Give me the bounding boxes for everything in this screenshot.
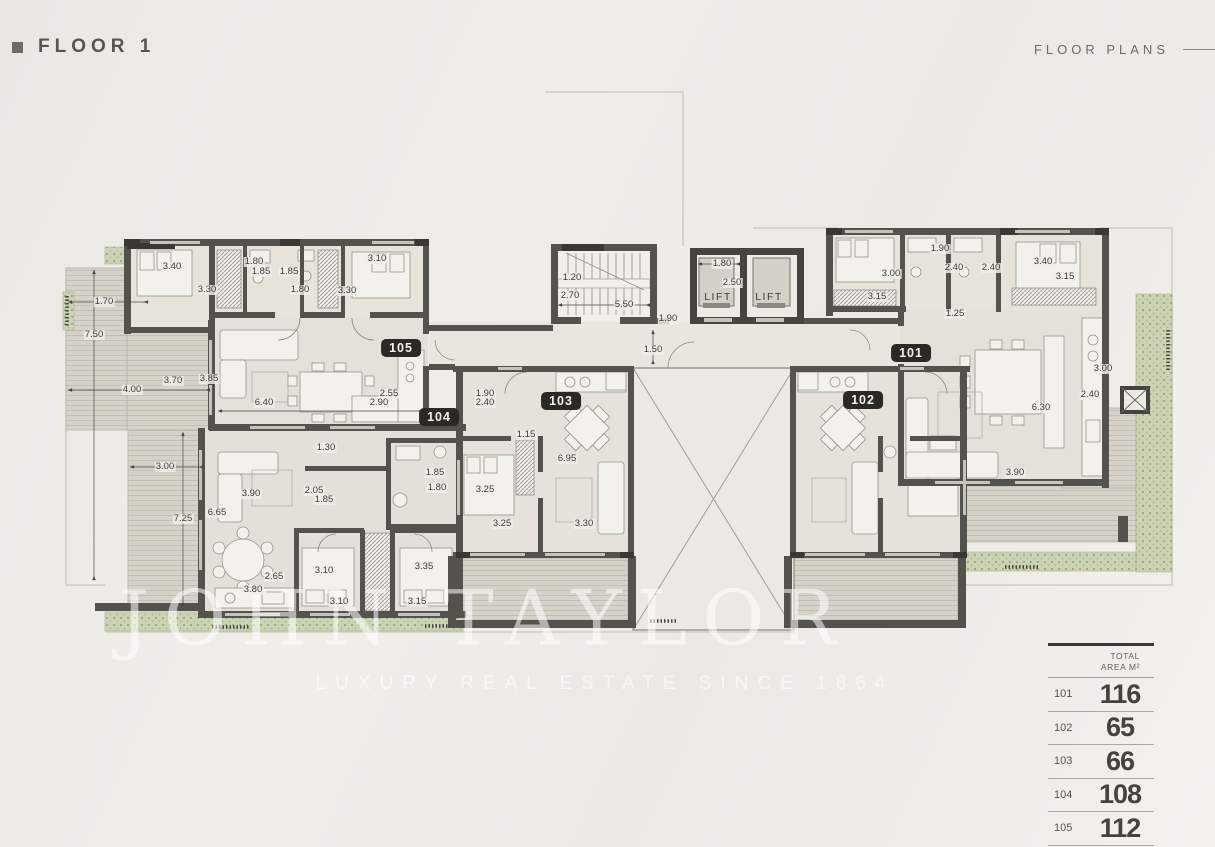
area-table-area: 108 [1086, 779, 1154, 810]
area-table-body: 1011161026510366104108105112 [1048, 678, 1154, 846]
area-table-row: 104108 [1048, 779, 1154, 813]
area-table-unit: 105 [1048, 822, 1086, 834]
area-table-area: 112 [1086, 813, 1154, 844]
floor-plan-drawing [0, 0, 1215, 847]
area-table-row: 10366 [1048, 745, 1154, 779]
watermark-brand: JOHN TAYLOR [118, 574, 851, 663]
area-table-unit: 101 [1048, 688, 1086, 700]
area-table-row: 101116 [1048, 678, 1154, 712]
area-table-row: 105112 [1048, 812, 1154, 846]
area-table-unit: 102 [1048, 722, 1086, 734]
area-table-area: 116 [1086, 679, 1154, 710]
area-table: TOTAL AREA M² 10111610265103661041081051… [1048, 643, 1154, 846]
area-table-header-line1: TOTAL [1048, 651, 1140, 662]
area-table-unit: 103 [1048, 755, 1086, 767]
area-table-unit: 104 [1048, 789, 1086, 801]
area-table-area: 65 [1086, 712, 1154, 743]
area-table-header: TOTAL AREA M² [1048, 643, 1154, 678]
watermark-tagline: LUXURY REAL ESTATE SINCE 1864 [316, 673, 895, 695]
area-table-area: 66 [1086, 746, 1154, 777]
area-table-header-line2: AREA M² [1048, 662, 1140, 673]
floor-plan-page: FLOOR 1 FLOOR PLANS [0, 0, 1215, 847]
area-table-row: 10265 [1048, 712, 1154, 746]
